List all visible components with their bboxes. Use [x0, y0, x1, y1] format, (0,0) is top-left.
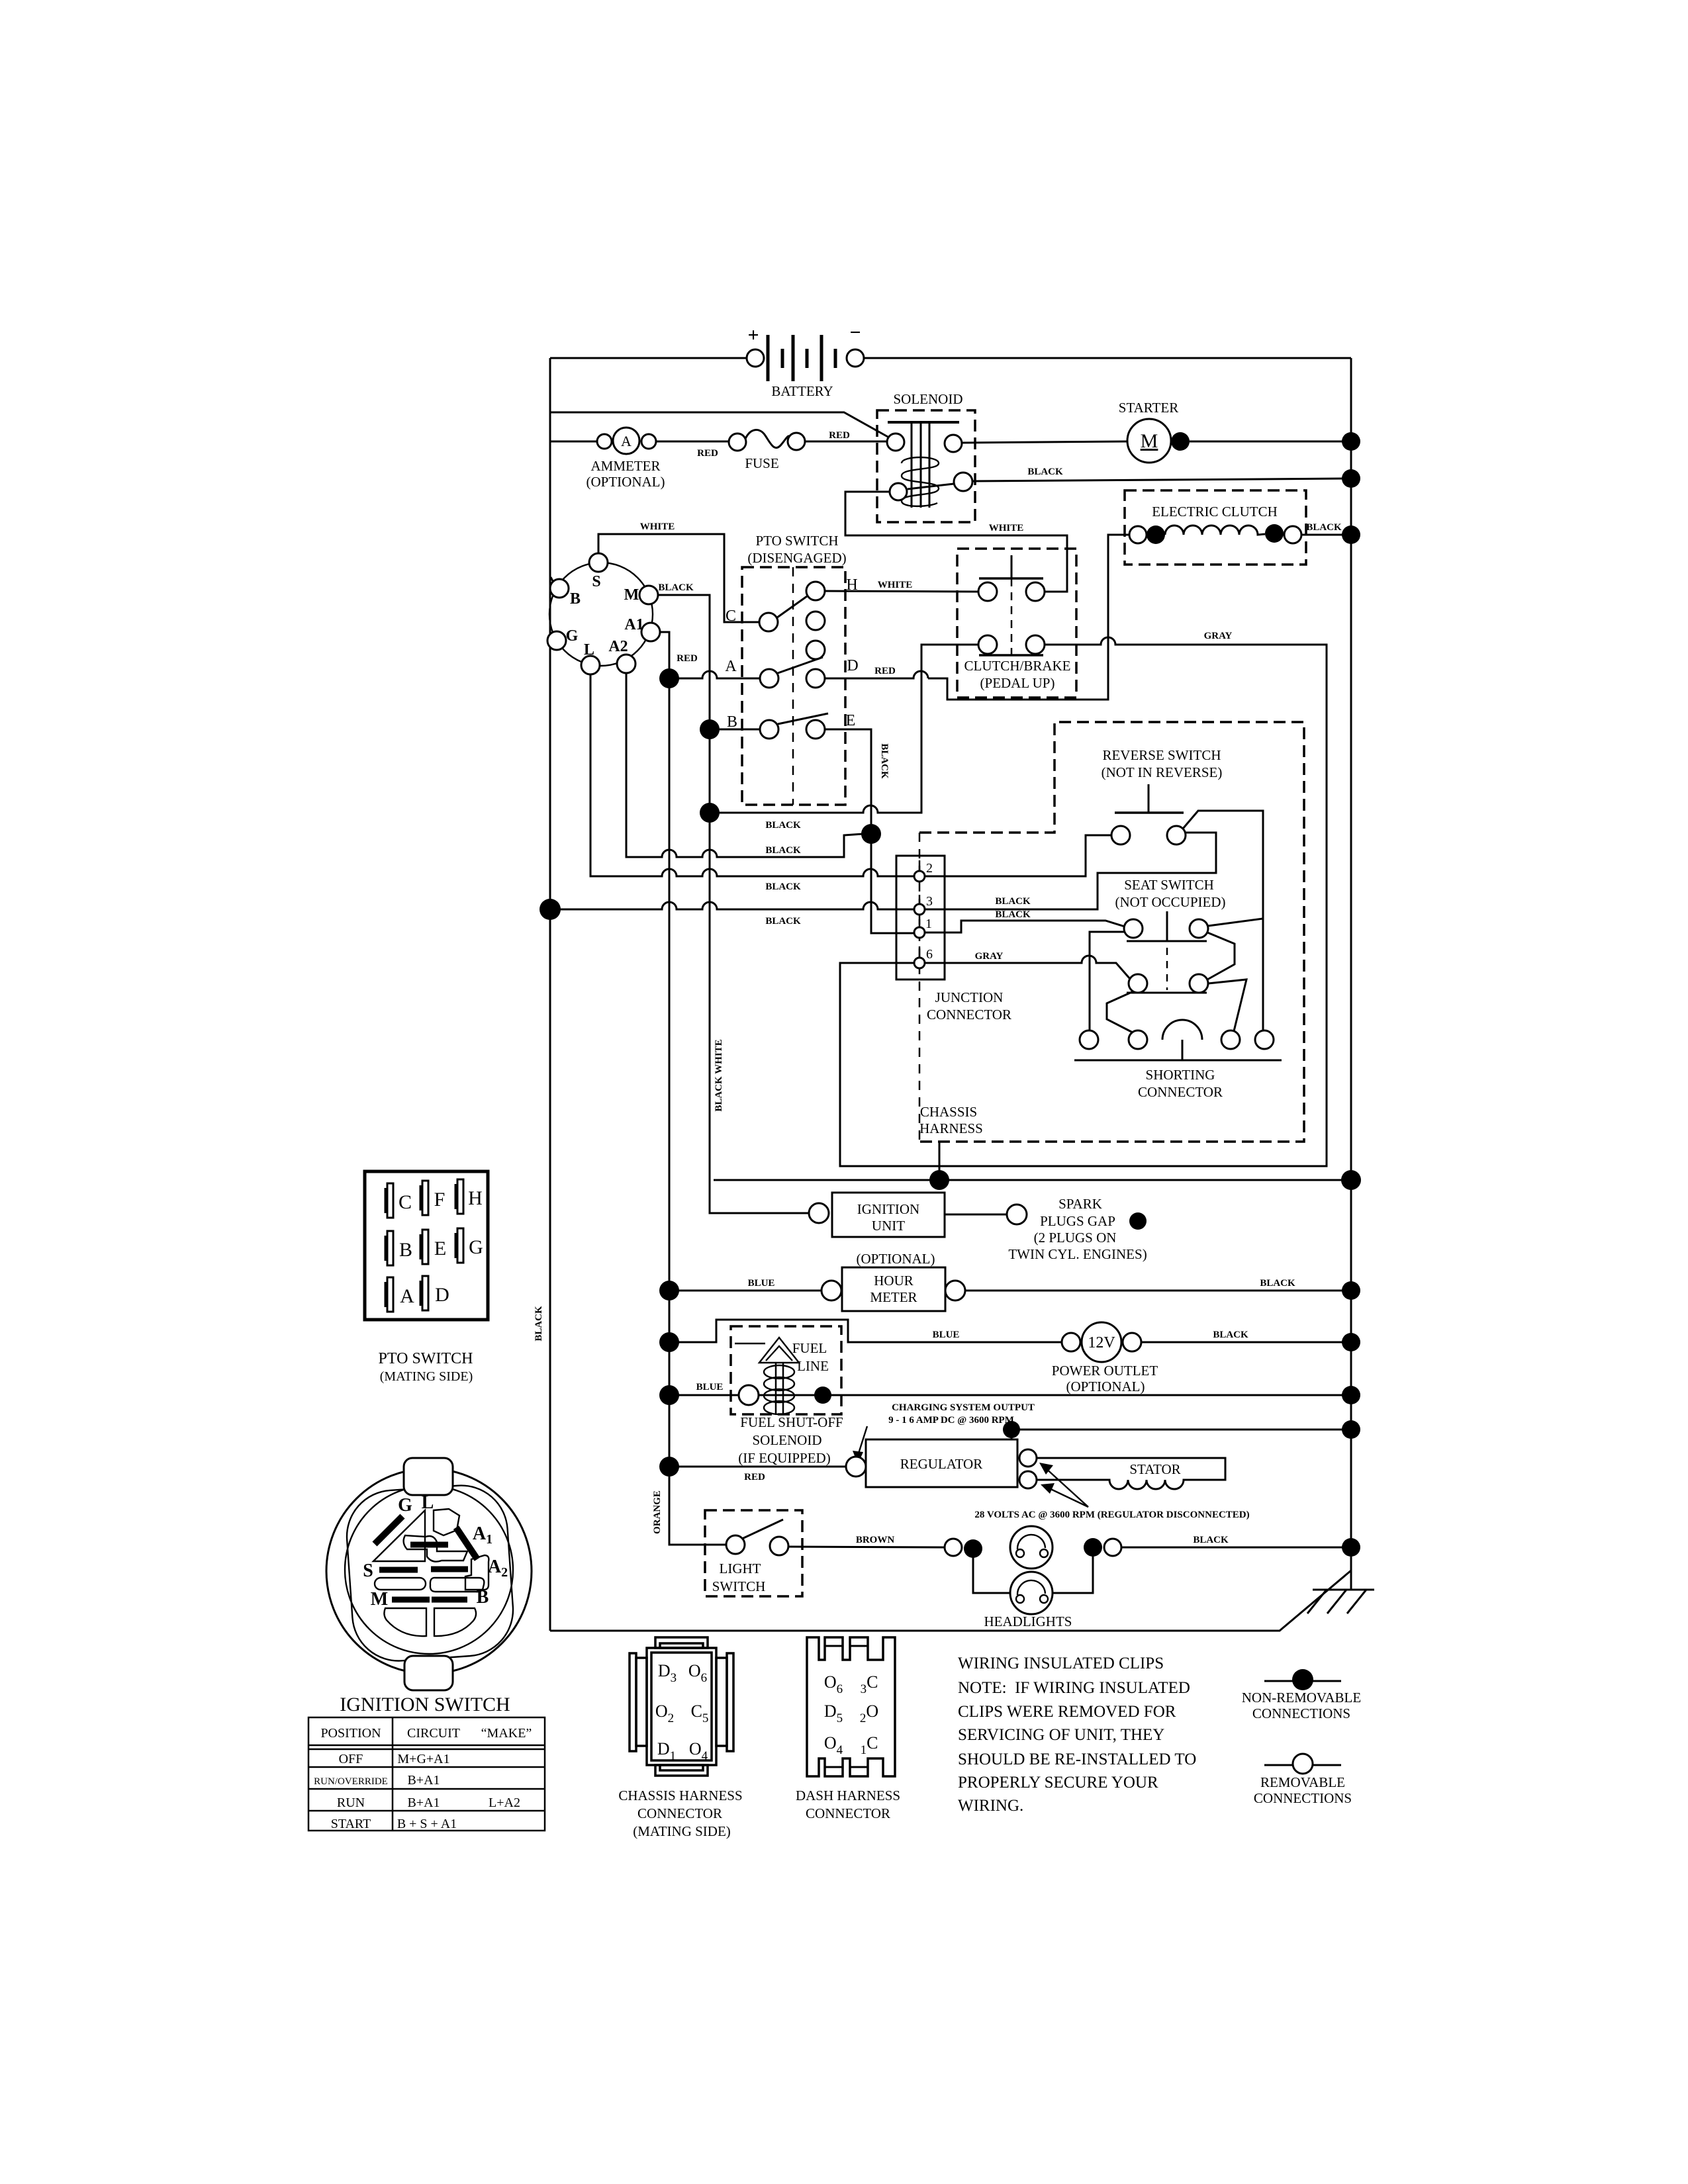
svg-text:BLACK: BLACK [1213, 1330, 1248, 1340]
svg-text:“MAKE”: “MAKE” [481, 1726, 532, 1741]
svg-text:(MATING SIDE): (MATING SIDE) [633, 1823, 731, 1839]
svg-text:OFF: OFF [339, 1752, 363, 1766]
svg-text:POWER OUTLET: POWER OUTLET [1052, 1363, 1158, 1379]
svg-text:BLACK: BLACK [765, 916, 801, 927]
svg-text:BLUE: BLUE [696, 1382, 724, 1392]
svg-text:(NOT OCCUPIED): (NOT OCCUPIED) [1115, 894, 1225, 910]
svg-text:CONNECTIONS: CONNECTIONS [1254, 1790, 1352, 1806]
svg-text:BLACK: BLACK [995, 909, 1031, 920]
svg-text:6: 6 [926, 947, 933, 962]
svg-text:BLACK: BLACK [765, 845, 801, 856]
svg-text:SERVICING OF UNIT, THEY: SERVICING OF UNIT, THEY [958, 1726, 1164, 1744]
svg-text:TWIN CYL. ENGINES): TWIN CYL. ENGINES) [1008, 1246, 1147, 1262]
svg-text:PLUGS GAP: PLUGS GAP [1040, 1213, 1115, 1229]
svg-text:LIGHT: LIGHT [720, 1561, 761, 1576]
svg-text:BLACK: BLACK [1027, 467, 1063, 477]
svg-text:AMMETER: AMMETER [591, 458, 661, 474]
svg-text:CONNECTOR: CONNECTOR [927, 1007, 1011, 1023]
svg-text:FUEL: FUEL [792, 1340, 827, 1356]
svg-text:HOUR: HOUR [874, 1273, 914, 1289]
svg-text:CLUTCH/BRAKE: CLUTCH/BRAKE [964, 658, 1070, 674]
svg-text:SOLENOID: SOLENOID [894, 391, 963, 407]
svg-text:S: S [592, 573, 600, 590]
svg-text:−: − [849, 322, 861, 343]
svg-text:DASH HARNESS: DASH HARNESS [796, 1788, 900, 1803]
svg-text:C: C [399, 1191, 412, 1213]
svg-text:L: L [422, 1492, 434, 1513]
svg-text:A: A [725, 658, 737, 675]
svg-text:RED: RED [677, 653, 698, 664]
svg-text:D: D [847, 657, 858, 674]
svg-text:3: 3 [926, 894, 933, 909]
svg-text:WHITE: WHITE [640, 522, 675, 532]
svg-text:L: L [584, 641, 594, 659]
svg-text:JUNCTION: JUNCTION [935, 989, 1004, 1005]
svg-text:NON-REMOVABLE: NON-REMOVABLE [1242, 1690, 1361, 1706]
svg-text:(PEDAL UP): (PEDAL UP) [980, 675, 1055, 691]
svg-text:(OPTIONAL): (OPTIONAL) [857, 1251, 935, 1267]
svg-text:BLUE: BLUE [933, 1330, 960, 1340]
svg-text:WHITE: WHITE [878, 580, 913, 590]
svg-text:M: M [624, 586, 639, 604]
svg-text:STARTER: STARTER [1119, 400, 1178, 416]
svg-text:SHORTING: SHORTING [1146, 1067, 1215, 1083]
svg-text:CONNECTOR: CONNECTOR [1138, 1084, 1223, 1100]
svg-text:A2: A2 [608, 638, 628, 655]
svg-text:B+A1: B+A1 [407, 1773, 440, 1788]
svg-text:BLACK: BLACK [1193, 1535, 1229, 1545]
svg-text:B: B [570, 590, 581, 608]
svg-text:CONNECTOR: CONNECTOR [637, 1805, 722, 1821]
svg-text:BLACK: BLACK [879, 743, 890, 779]
svg-text:UNIT: UNIT [872, 1218, 905, 1234]
svg-text:F: F [434, 1189, 445, 1210]
svg-text:(2 PLUGS ON: (2 PLUGS ON [1034, 1230, 1117, 1246]
svg-text:BLACK: BLACK [765, 820, 801, 831]
svg-text:FUEL SHUT-OFF: FUEL SHUT-OFF [740, 1414, 843, 1430]
svg-text:G: G [398, 1495, 412, 1516]
svg-text:(DISENGAGED): (DISENGAGED) [747, 550, 846, 566]
svg-text:ORANGE: ORANGE [652, 1490, 663, 1534]
svg-text:GRAY: GRAY [975, 951, 1004, 962]
svg-text:E: E [846, 712, 856, 729]
svg-text:WHITE: WHITE [989, 523, 1024, 533]
svg-text:SEAT SWITCH: SEAT SWITCH [1124, 877, 1214, 893]
svg-text:1: 1 [925, 917, 932, 931]
svg-text:12V: 12V [1088, 1334, 1115, 1351]
svg-text:A1: A1 [624, 616, 643, 633]
svg-text:CIRCUIT: CIRCUIT [407, 1726, 460, 1741]
svg-text:BLACK WHITE: BLACK WHITE [714, 1039, 724, 1111]
svg-text:RUN/OVERRIDE: RUN/OVERRIDE [314, 1776, 388, 1787]
svg-text:(OPTIONAL): (OPTIONAL) [1066, 1379, 1145, 1394]
svg-text:9 - 1 6 AMP DC @ 3600 RPM: 9 - 1 6 AMP DC @ 3600 RPM [888, 1415, 1014, 1426]
svg-text:START: START [331, 1817, 371, 1831]
svg-text:PTO SWITCH: PTO SWITCH [755, 533, 838, 549]
svg-text:G: G [566, 627, 579, 645]
svg-text:(IF EQUIPPED): (IF EQUIPPED) [738, 1450, 830, 1466]
svg-text:FUSE: FUSE [745, 455, 778, 471]
svg-text:A: A [400, 1285, 414, 1307]
svg-text:(NOT IN REVERSE): (NOT IN REVERSE) [1102, 764, 1223, 780]
svg-text:HARNESS: HARNESS [919, 1120, 983, 1136]
svg-text:BLACK: BLACK [658, 582, 694, 593]
svg-text:HEADLIGHTS: HEADLIGHTS [984, 1614, 1072, 1629]
svg-text:CONNECTIONS: CONNECTIONS [1252, 1706, 1350, 1721]
svg-text:REGULATOR: REGULATOR [900, 1456, 982, 1472]
svg-text:B: B [477, 1587, 489, 1608]
svg-text:D: D [435, 1284, 449, 1306]
svg-text:PROPERLY SECURE YOUR: PROPERLY SECURE YOUR [958, 1774, 1158, 1792]
svg-text:IGNITION: IGNITION [857, 1201, 919, 1217]
svg-text:POSITION: POSITION [320, 1726, 381, 1741]
svg-text:NOTE: IF WIRING INSULATED: NOTE: IF WIRING INSULATED [958, 1679, 1190, 1697]
svg-text:CHASSIS HARNESS: CHASSIS HARNESS [618, 1788, 742, 1803]
svg-text:RUN: RUN [337, 1796, 365, 1810]
svg-text:WIRING INSULATED CLIPS: WIRING INSULATED CLIPS [958, 1655, 1164, 1672]
svg-text:B: B [727, 713, 737, 731]
svg-text:2: 2 [926, 861, 933, 876]
svg-text:BLACK: BLACK [534, 1306, 544, 1342]
svg-text:STATOR: STATOR [1129, 1461, 1180, 1477]
svg-text:A: A [621, 433, 632, 449]
svg-text:CHASSIS: CHASSIS [920, 1104, 977, 1120]
svg-text:B: B [399, 1239, 412, 1261]
svg-text:RED: RED [697, 448, 718, 459]
svg-text:H: H [468, 1187, 483, 1209]
svg-text:WIRING.: WIRING. [958, 1797, 1023, 1815]
svg-text:B + S + A1: B + S + A1 [397, 1817, 457, 1831]
svg-text:RED: RED [829, 430, 850, 441]
svg-text:BLACK: BLACK [1306, 522, 1342, 533]
svg-text:BLACK: BLACK [995, 896, 1031, 907]
svg-text:CLIPS WERE REMOVED FOR: CLIPS WERE REMOVED FOR [958, 1703, 1176, 1721]
svg-text:RED: RED [874, 666, 896, 676]
svg-text:L+A2: L+A2 [489, 1796, 520, 1810]
svg-text:E: E [434, 1238, 446, 1259]
svg-text:SWITCH: SWITCH [712, 1578, 766, 1594]
svg-text:ELECTRIC CLUTCH: ELECTRIC CLUTCH [1152, 504, 1278, 520]
svg-text:SPARK: SPARK [1058, 1196, 1102, 1212]
svg-text:(OPTIONAL): (OPTIONAL) [586, 474, 665, 490]
svg-text:+: + [747, 324, 759, 346]
svg-text:REVERSE SWITCH: REVERSE SWITCH [1102, 747, 1221, 763]
svg-text:M: M [1141, 430, 1158, 452]
svg-text:28 VOLTS AC @ 3600 RPM (REGULA: 28 VOLTS AC @ 3600 RPM (REGULATOR DISCON… [974, 1510, 1249, 1520]
svg-text:METER: METER [870, 1289, 917, 1305]
svg-text:LINE: LINE [797, 1358, 829, 1374]
svg-text:SHOULD BE RE-INSTALLED TO: SHOULD BE RE-INSTALLED TO [958, 1751, 1196, 1768]
svg-text:REMOVABLE: REMOVABLE [1260, 1774, 1345, 1790]
svg-text:BLACK: BLACK [1260, 1278, 1295, 1289]
svg-text:CHARGING SYSTEM OUTPUT: CHARGING SYSTEM OUTPUT [892, 1402, 1035, 1413]
svg-text:BLUE: BLUE [748, 1278, 775, 1289]
svg-text:B+A1: B+A1 [407, 1796, 440, 1810]
svg-text:(MATING SIDE): (MATING SIDE) [380, 1369, 473, 1384]
svg-text:PTO SWITCH: PTO SWITCH [379, 1350, 473, 1367]
svg-text:BLACK: BLACK [765, 882, 801, 892]
svg-text:G: G [469, 1236, 483, 1258]
svg-text:M+G+A1: M+G+A1 [397, 1752, 449, 1766]
svg-text:CONNECTOR: CONNECTOR [806, 1805, 890, 1821]
svg-text:C: C [726, 608, 736, 625]
svg-text:S: S [363, 1561, 373, 1581]
svg-text:SOLENOID: SOLENOID [753, 1432, 822, 1448]
svg-text:M: M [371, 1589, 388, 1610]
svg-text:RED: RED [744, 1472, 765, 1482]
svg-text:IGNITION SWITCH: IGNITION SWITCH [340, 1694, 510, 1715]
svg-text:GRAY: GRAY [1204, 631, 1233, 641]
svg-text:BROWN: BROWN [856, 1535, 895, 1545]
svg-text:BATTERY: BATTERY [771, 383, 833, 399]
